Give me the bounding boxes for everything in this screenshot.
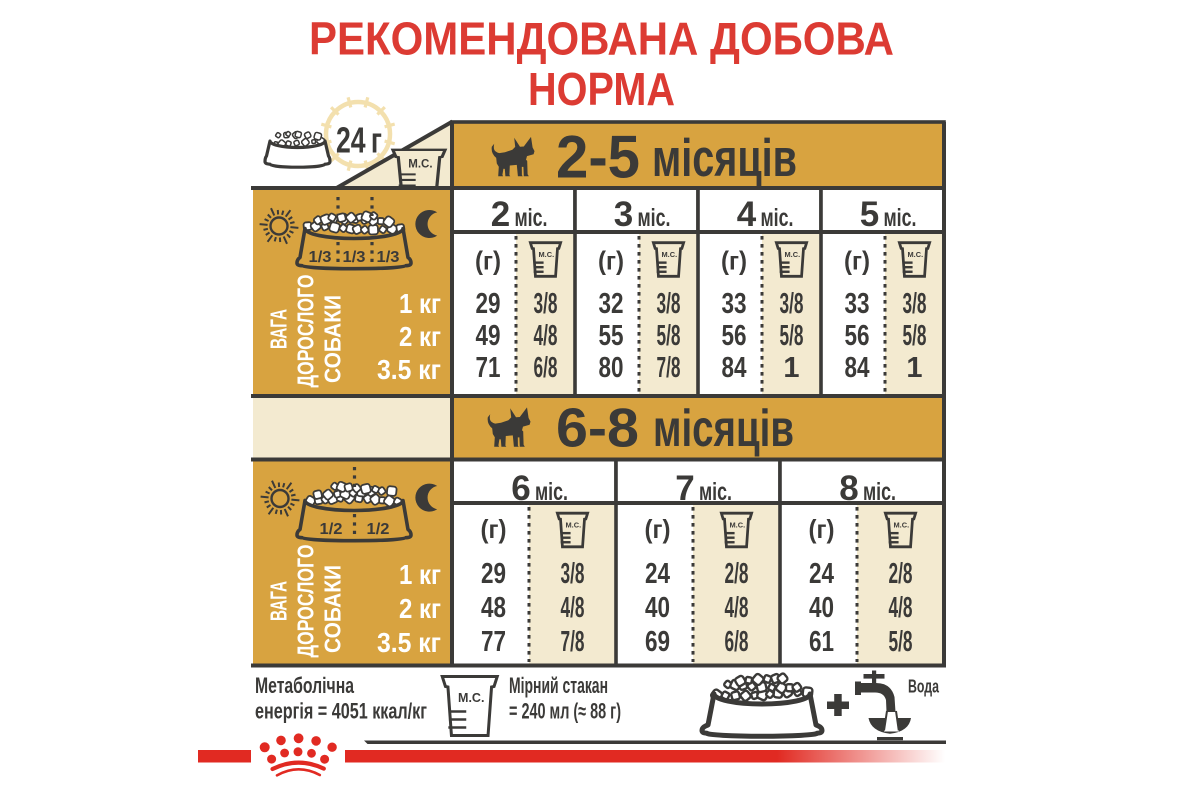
svg-text:2/8: 2/8 <box>725 558 749 590</box>
svg-text:80: 80 <box>599 352 624 384</box>
svg-text:М.С.: М.С. <box>894 521 910 530</box>
svg-text:М.С.: М.С. <box>785 250 801 259</box>
svg-text:5: 5 <box>860 195 879 234</box>
svg-text:(г): (г) <box>721 246 747 276</box>
svg-text:56: 56 <box>845 320 870 352</box>
svg-text:міс.: міс. <box>884 204 917 232</box>
svg-text:(г): (г) <box>645 514 671 544</box>
svg-text:24: 24 <box>809 558 834 590</box>
svg-text:56: 56 <box>722 320 747 352</box>
svg-text:М.С.: М.С. <box>730 521 746 530</box>
svg-text:1/3: 1/3 <box>377 249 400 266</box>
svg-text:1: 1 <box>906 352 922 384</box>
svg-text:СОБАКИ: СОБАКИ <box>320 565 346 653</box>
svg-text:2 кг: 2 кг <box>399 321 441 352</box>
svg-text:6-8: 6-8 <box>556 397 639 459</box>
svg-text:55: 55 <box>599 320 624 352</box>
svg-text:4/8: 4/8 <box>534 320 558 352</box>
svg-text:3/8: 3/8 <box>534 288 558 320</box>
svg-text:5/8: 5/8 <box>657 320 681 352</box>
svg-text:СОБАКИ: СОБАКИ <box>320 295 346 383</box>
svg-text:енергія = 4051 ккал/кг: енергія = 4051 ккал/кг <box>255 699 427 724</box>
svg-text:(г): (г) <box>809 514 835 544</box>
svg-text:48: 48 <box>481 592 506 624</box>
svg-text:33: 33 <box>722 288 747 320</box>
svg-text:49: 49 <box>476 320 501 352</box>
svg-text:2: 2 <box>491 195 510 234</box>
svg-text:Метаболічна: Метаболічна <box>255 673 355 698</box>
svg-text:2 кг: 2 кг <box>399 593 441 624</box>
svg-text:6/8: 6/8 <box>534 352 558 384</box>
svg-text:2-5: 2-5 <box>556 124 640 191</box>
svg-text:5/8: 5/8 <box>780 320 804 352</box>
svg-text:1/2: 1/2 <box>367 521 390 538</box>
svg-text:3: 3 <box>614 195 633 234</box>
svg-text:(г): (г) <box>481 514 507 544</box>
svg-text:міс.: міс. <box>515 204 548 232</box>
svg-text:3/8: 3/8 <box>657 288 681 320</box>
svg-text:2/8: 2/8 <box>889 558 913 590</box>
svg-text:33: 33 <box>845 288 870 320</box>
svg-text:М.С.: М.С. <box>566 521 582 530</box>
svg-text:М.С.: М.С. <box>458 691 484 705</box>
svg-text:4: 4 <box>737 195 757 234</box>
svg-text:29: 29 <box>481 558 506 590</box>
svg-text:РЕКОМЕНДОВАНА ДОБОВА: РЕКОМЕНДОВАНА ДОБОВА <box>309 13 894 65</box>
svg-text:29: 29 <box>476 288 501 320</box>
svg-text:61: 61 <box>809 626 834 658</box>
svg-text:міс.: міс. <box>761 204 794 232</box>
svg-text:3/8: 3/8 <box>903 288 927 320</box>
svg-text:32: 32 <box>599 288 624 320</box>
svg-text:1: 1 <box>783 352 799 384</box>
svg-text:24: 24 <box>645 558 670 590</box>
svg-text:Вода: Вода <box>908 677 940 697</box>
svg-text:1/2: 1/2 <box>320 521 343 538</box>
svg-text:М.С.: М.С. <box>539 250 555 259</box>
svg-text:3.5 кг: 3.5 кг <box>377 354 441 385</box>
svg-text:84: 84 <box>722 352 747 384</box>
svg-text:1 кг: 1 кг <box>399 559 441 590</box>
svg-text:міс.: міс. <box>638 204 671 232</box>
svg-text:3/8: 3/8 <box>561 558 585 590</box>
svg-text:М.С.: М.С. <box>908 250 924 259</box>
svg-text:Мірний стакан: Мірний стакан <box>509 673 608 698</box>
svg-text:71: 71 <box>476 352 501 384</box>
svg-text:М.С.: М.С. <box>662 250 678 259</box>
svg-text:місяців: місяців <box>652 129 797 188</box>
svg-text:7/8: 7/8 <box>561 626 585 658</box>
svg-text:(г): (г) <box>475 246 501 276</box>
svg-text:40: 40 <box>809 592 834 624</box>
svg-text:ВАГА: ВАГА <box>266 581 292 621</box>
svg-text:77: 77 <box>481 626 506 658</box>
svg-text:7/8: 7/8 <box>657 352 681 384</box>
svg-text:5/8: 5/8 <box>903 320 927 352</box>
svg-text:4/8: 4/8 <box>889 592 913 624</box>
svg-text:6/8: 6/8 <box>725 626 749 658</box>
svg-text:3/8: 3/8 <box>780 288 804 320</box>
svg-text:(г): (г) <box>844 246 870 276</box>
svg-text:ДОРОСЛОГО: ДОРОСЛОГО <box>293 545 319 658</box>
svg-text:М.С.: М.С. <box>408 159 432 171</box>
svg-text:ДОРОСЛОГО: ДОРОСЛОГО <box>293 275 319 388</box>
svg-text:ВАГА: ВАГА <box>266 309 292 349</box>
svg-text:місяців: місяців <box>653 400 794 458</box>
svg-text:69: 69 <box>645 626 670 658</box>
svg-text:3.5 кг: 3.5 кг <box>377 627 441 658</box>
svg-text:84: 84 <box>845 352 870 384</box>
svg-text:1/3: 1/3 <box>309 249 332 266</box>
svg-text:= 240 мл (≈ 88 г): = 240 мл (≈ 88 г) <box>509 699 621 724</box>
svg-text:1 кг: 1 кг <box>399 288 441 319</box>
svg-text:НОРМА: НОРМА <box>528 63 675 115</box>
svg-text:5/8: 5/8 <box>889 626 913 658</box>
svg-text:40: 40 <box>645 592 670 624</box>
svg-text:(г): (г) <box>598 246 624 276</box>
svg-text:24 г: 24 г <box>336 120 382 161</box>
svg-text:1/3: 1/3 <box>343 249 366 266</box>
svg-text:4/8: 4/8 <box>561 592 585 624</box>
svg-text:4/8: 4/8 <box>725 592 749 624</box>
